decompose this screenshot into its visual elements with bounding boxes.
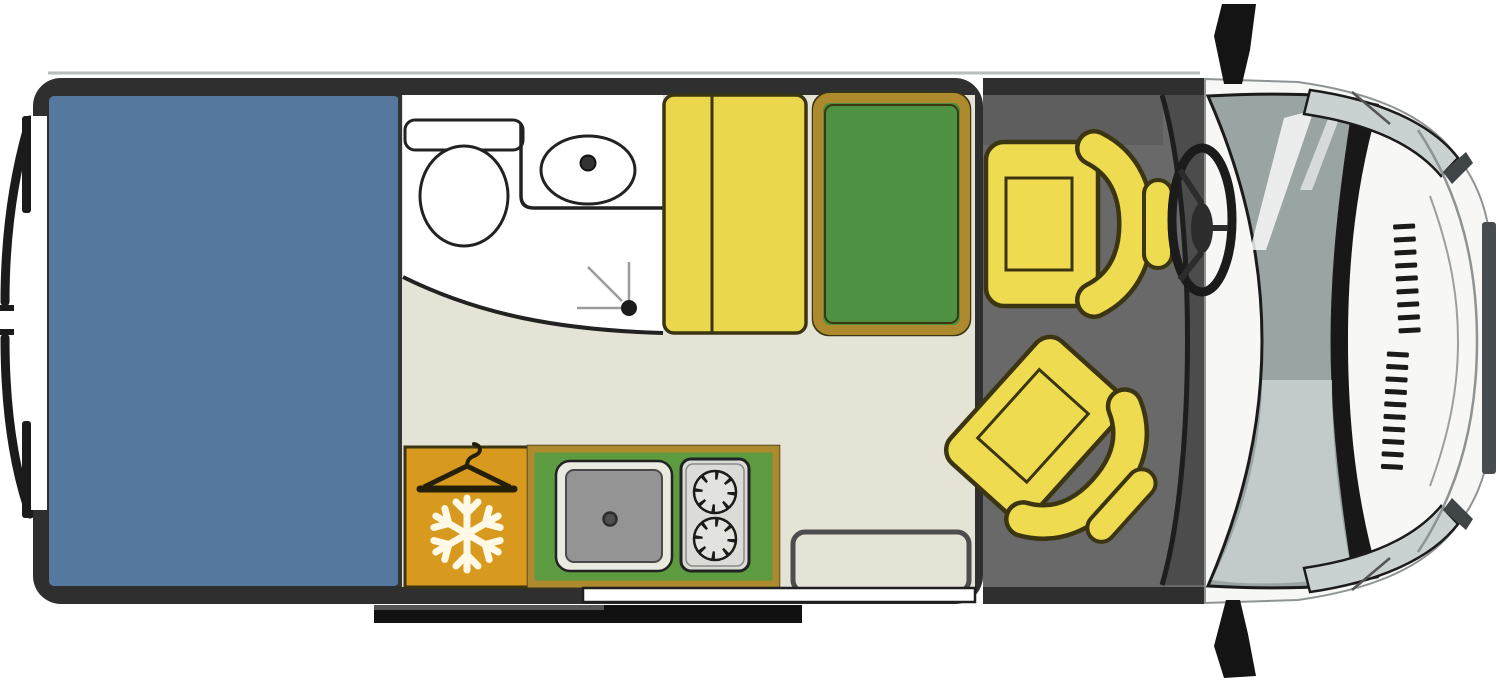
kitchen-block bbox=[528, 446, 779, 587]
front-bumper-strip bbox=[1482, 222, 1496, 474]
washbasin-drain bbox=[581, 156, 596, 171]
cab-shelf-shadow bbox=[983, 95, 1163, 145]
floorplan-image bbox=[0, 0, 1500, 684]
sliding-door-panel-edge bbox=[374, 605, 604, 610]
floorplan-svg bbox=[0, 0, 1500, 684]
bench-seat bbox=[664, 95, 806, 333]
steering-wheel-hub bbox=[1191, 203, 1213, 253]
sliding-doorway-opening bbox=[583, 588, 975, 602]
toilet-bowl bbox=[420, 146, 508, 246]
hob-burner-icon bbox=[681, 459, 749, 571]
washbasin-icon bbox=[541, 136, 635, 204]
rear-door-panel-top bbox=[22, 116, 31, 213]
sink-drain bbox=[604, 513, 617, 526]
kitchen-sink-icon bbox=[556, 461, 672, 571]
van-nose bbox=[1205, 79, 1496, 603]
door-hinge-pivot bbox=[621, 300, 637, 316]
cab-wall-bottom bbox=[983, 587, 1205, 604]
rear-door-tick-top bbox=[0, 305, 14, 311]
green-bed bbox=[818, 98, 965, 330]
rear-door-tick-bottom bbox=[0, 329, 14, 335]
wardrobe-fridge-unit bbox=[405, 444, 530, 587]
lounge bbox=[664, 93, 970, 335]
cab-wall-top bbox=[983, 78, 1205, 95]
rear-door-opening bbox=[31, 116, 48, 510]
rear-bed bbox=[48, 95, 400, 587]
rear-door-panel-bottom bbox=[22, 421, 31, 518]
